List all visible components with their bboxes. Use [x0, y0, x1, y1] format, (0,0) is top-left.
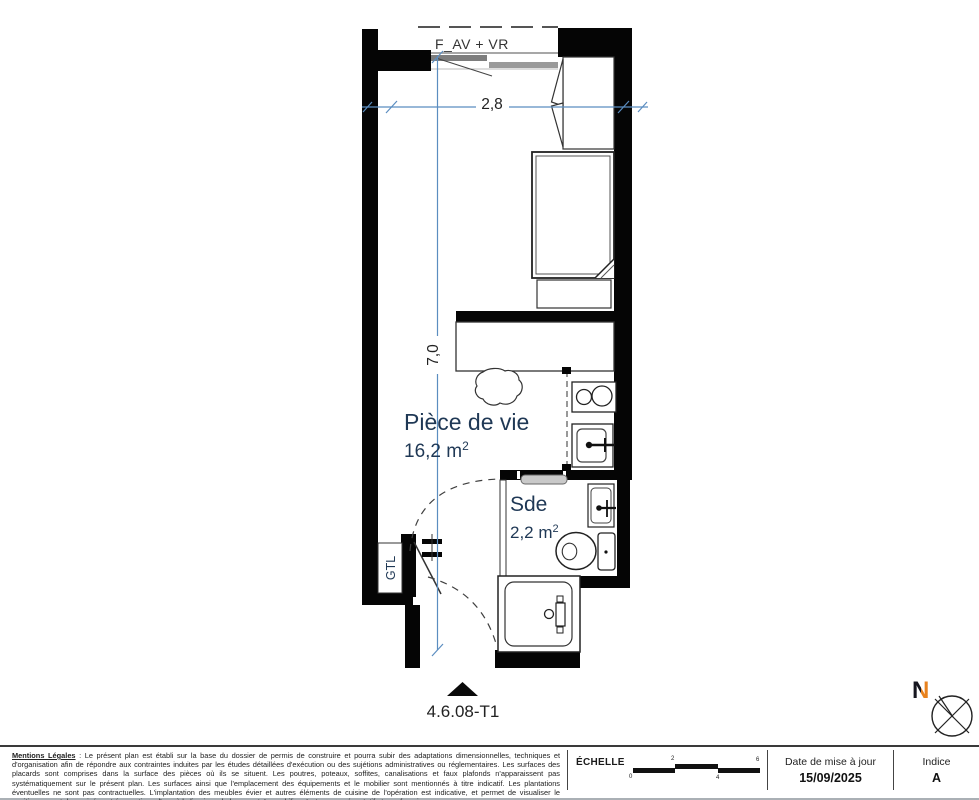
kitchen-sink [572, 424, 615, 467]
bed [532, 152, 614, 278]
footer: Mentions Légales : Le présent plan est é… [0, 745, 979, 800]
chair [475, 368, 522, 405]
entrance-door [410, 479, 499, 647]
scale-label: ÉCHELLE [576, 757, 625, 768]
bathroom-area: 2,2 m2 [510, 523, 559, 542]
indice-label: Indice [894, 756, 979, 768]
unit-label: 4.6.08-T1 [427, 702, 500, 721]
date-block: Date de mise à jour 15/09/2025 [768, 747, 893, 797]
legal-mentions: Mentions Légales : Le présent plan est é… [12, 751, 560, 800]
scale-tick: 6 [756, 757, 759, 763]
scale-segment [633, 768, 675, 773]
scale-segment [675, 764, 718, 769]
toilet [556, 533, 615, 571]
bathroom-label: Sde [510, 493, 547, 516]
dim-horizontal-label: 2,8 [481, 96, 503, 113]
scale-bar-icon: 0 2 4 6 [633, 761, 760, 779]
sliding-door [521, 475, 567, 484]
window-f-av-vr [431, 53, 558, 76]
scale-tick: 0 [629, 774, 632, 780]
bathroom-partition-wall [500, 480, 506, 576]
wardrobe [552, 57, 615, 149]
scale-tick: 4 [716, 775, 719, 781]
north-label: N [912, 677, 929, 704]
bed-foot-table [537, 280, 611, 308]
footer-divider [567, 750, 568, 790]
floor-plan: F_AV + VR [0, 0, 979, 745]
floor-plan-page: F_AV + VR [0, 0, 979, 800]
living-room-area: 16,2 m2 [404, 439, 469, 462]
living-room-label: Pièce de vie [404, 409, 529, 435]
window-label: F_AV + VR [435, 36, 509, 52]
scale-tick: 2 [671, 756, 674, 762]
desk [456, 322, 614, 371]
legal-title: Mentions Légales [12, 751, 76, 760]
legal-body: : Le présent plan est établi sur la base… [12, 751, 560, 800]
entrance-marker-icon [447, 682, 478, 696]
indice-value: A [894, 771, 979, 785]
compass-icon: N [912, 677, 972, 736]
date-value: 15/09/2025 [768, 771, 893, 785]
gtl-label: GTL [384, 556, 398, 580]
shower [498, 576, 580, 652]
washbasin [588, 484, 616, 527]
cooktop [572, 382, 616, 412]
dim-vertical-label: 7,0 [425, 344, 442, 366]
scale-segment [718, 768, 760, 773]
indice-block: Indice A [894, 747, 979, 797]
kitchen [562, 367, 616, 471]
date-label: Date de mise à jour [768, 756, 893, 768]
